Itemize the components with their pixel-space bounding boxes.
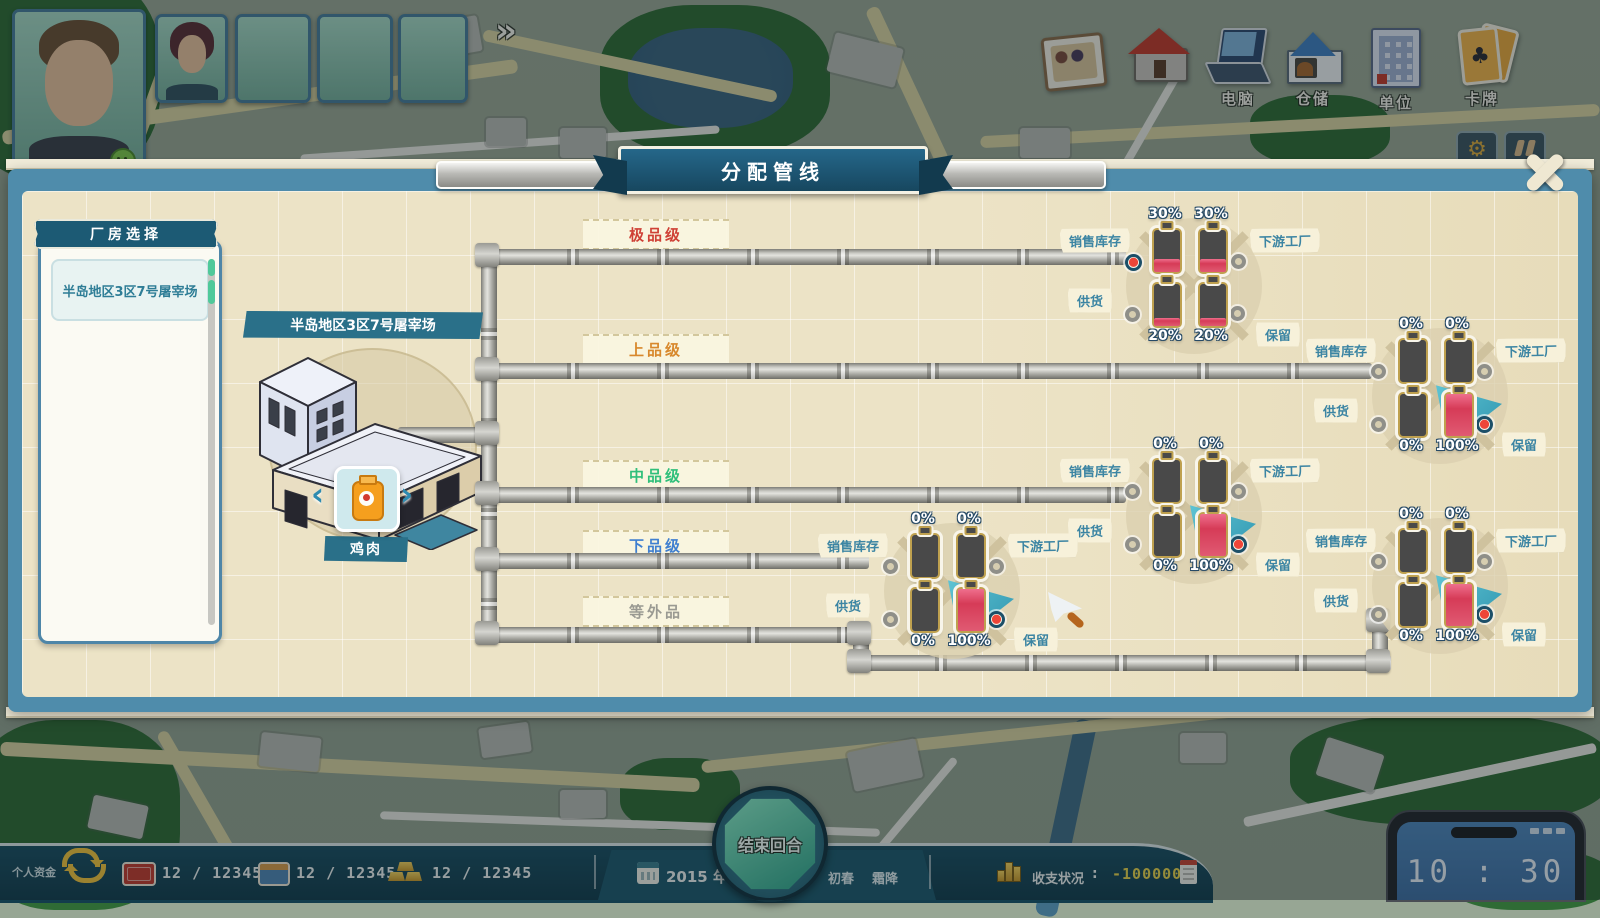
label-sales-inventory: 销售库存 xyxy=(1306,337,1377,363)
connection-dot[interactable] xyxy=(883,612,898,627)
panel-title: 分配管线 xyxy=(618,146,928,194)
battery-sales[interactable] xyxy=(1398,338,1428,384)
pct-supply: 0% xyxy=(1143,558,1187,574)
distribution-node-supreme: 30% 30% 20% 20% 销售库存 下游工厂 供货 保留 xyxy=(1134,226,1254,346)
label-downstream-factory: 下游工厂 xyxy=(1008,532,1079,558)
factory-name-ribbon: 半岛地区3区7号屠宰场 xyxy=(243,311,483,339)
battery-reserve[interactable] xyxy=(1198,512,1228,558)
pipe-grade-supreme xyxy=(489,249,1126,265)
close-icon[interactable] xyxy=(1522,150,1568,196)
distribution-node-high: 0% 0% 0% 100% 销售库存 下游工厂 供货 保留 xyxy=(1380,336,1500,456)
label-sales-inventory: 销售库存 xyxy=(1060,457,1131,483)
connection-dot[interactable] xyxy=(1231,484,1246,499)
grade-label-reject: 等外品 xyxy=(583,596,729,627)
pipe-joint xyxy=(475,421,499,445)
connection-dot[interactable] xyxy=(1371,417,1386,432)
pipe-joint xyxy=(475,547,499,571)
connection-dot[interactable] xyxy=(1125,537,1140,552)
connection-dot[interactable] xyxy=(1125,484,1140,499)
grade-label-high: 上品级 xyxy=(583,334,729,365)
product-slot[interactable] xyxy=(334,466,400,532)
battery-downstream[interactable] xyxy=(1444,528,1474,574)
pipe-joint xyxy=(475,357,499,381)
pct-reserve: 100% xyxy=(1435,628,1479,644)
pipe-joint xyxy=(475,621,499,645)
label-reserve: 保留 xyxy=(1502,622,1547,648)
connection-dot[interactable] xyxy=(1371,607,1386,622)
distribution-node-reject: 0% 0% 0% 100% 销售库存 下游工厂 供货 保留 xyxy=(1380,526,1500,646)
product-next-button[interactable]: › xyxy=(400,478,413,510)
pct-sales: 0% xyxy=(1389,506,1433,522)
pct-sales: 30% xyxy=(1143,206,1187,222)
label-downstream-factory: 下游工厂 xyxy=(1496,527,1567,553)
battery-reserve[interactable] xyxy=(1444,392,1474,438)
battery-sales[interactable] xyxy=(910,533,940,579)
pct-downstream: 30% xyxy=(1189,206,1233,222)
battery-downstream[interactable] xyxy=(1198,228,1228,274)
pct-supply: 0% xyxy=(1389,628,1433,644)
label-supply: 供货 xyxy=(1314,398,1359,424)
pct-supply: 0% xyxy=(901,633,945,649)
pct-downstream: 0% xyxy=(1189,436,1233,452)
label-supply: 供货 xyxy=(1068,288,1113,314)
pipe-grade-low xyxy=(489,553,869,569)
label-downstream-factory: 下游工厂 xyxy=(1250,457,1321,483)
connection-dot[interactable] xyxy=(1371,554,1386,569)
battery-reserve[interactable] xyxy=(1444,582,1474,628)
connection-dot[interactable] xyxy=(1371,364,1386,379)
connection-dot[interactable] xyxy=(1231,254,1246,269)
battery-reserve[interactable] xyxy=(956,587,986,633)
pipe-joint xyxy=(847,649,871,673)
battery-downstream[interactable] xyxy=(1444,338,1474,384)
connection-dot-active[interactable] xyxy=(988,611,1005,628)
pct-reserve: 100% xyxy=(1435,438,1479,454)
connection-dot-active[interactable] xyxy=(1476,416,1493,433)
distribution-node-low: 0% 0% 0% 100% 销售库存 下游工厂 供货 保留 xyxy=(892,531,1012,651)
pct-reserve: 100% xyxy=(947,633,991,649)
label-reserve: 保留 xyxy=(1256,552,1301,578)
battery-downstream[interactable] xyxy=(956,533,986,579)
factory-select-header: 厂房选择 xyxy=(34,219,218,249)
pipe-grade-high xyxy=(489,363,1372,379)
connection-dot[interactable] xyxy=(1230,306,1245,321)
connection-dot-active[interactable] xyxy=(1476,606,1493,623)
label-sales-inventory: 销售库存 xyxy=(818,532,889,558)
grade-label-supreme: 极品级 xyxy=(583,219,729,250)
label-sales-inventory: 销售库存 xyxy=(1060,227,1131,253)
pct-sales: 0% xyxy=(901,511,945,527)
connection-dot[interactable] xyxy=(883,559,898,574)
connection-dot-active[interactable] xyxy=(1125,254,1142,271)
pct-sales: 0% xyxy=(1143,436,1187,452)
connection-dot[interactable] xyxy=(1125,307,1140,322)
battery-supply[interactable] xyxy=(1152,512,1182,558)
label-reserve: 保留 xyxy=(1256,322,1301,348)
pct-reserve: 100% xyxy=(1189,558,1233,574)
label-supply: 供货 xyxy=(826,593,871,619)
distribution-node-mid: 0% 0% 0% 100% 销售库存 下游工厂 供货 保留 xyxy=(1134,456,1254,576)
pct-reserve: 20% xyxy=(1189,328,1233,344)
battery-supply[interactable] xyxy=(1398,582,1428,628)
pipe-grade-mid xyxy=(489,487,1126,503)
factory-select-list: 半岛地区3区7号屠宰场 xyxy=(38,240,222,644)
pipe-grade-reject xyxy=(489,627,857,643)
pct-sales: 0% xyxy=(1389,316,1433,332)
pct-downstream: 0% xyxy=(1435,506,1479,522)
pct-supply: 0% xyxy=(1389,438,1433,454)
connection-dot-active[interactable] xyxy=(1230,536,1247,553)
scrollbar-thumb[interactable] xyxy=(208,280,215,304)
label-supply: 供货 xyxy=(1314,588,1359,614)
pct-supply: 20% xyxy=(1143,328,1187,344)
connection-dot[interactable] xyxy=(1477,364,1492,379)
pipe-joint xyxy=(847,621,871,645)
pct-downstream: 0% xyxy=(947,511,991,527)
product-name-ribbon: 鸡肉 xyxy=(324,536,408,562)
battery-sales[interactable] xyxy=(1152,458,1182,504)
label-downstream-factory: 下游工厂 xyxy=(1496,337,1567,363)
pipe-joint xyxy=(475,481,499,505)
battery-supply[interactable] xyxy=(1152,282,1182,328)
product-prev-button[interactable]: ‹ xyxy=(311,478,324,510)
pct-downstream: 0% xyxy=(1435,316,1479,332)
chicken-jar-icon xyxy=(352,481,384,521)
label-sales-inventory: 销售库存 xyxy=(1306,527,1377,553)
battery-downstream[interactable] xyxy=(1198,458,1228,504)
battery-sales[interactable] xyxy=(1398,528,1428,574)
label-reserve: 保留 xyxy=(1502,432,1547,458)
connection-dot[interactable] xyxy=(1477,554,1492,569)
battery-sales[interactable] xyxy=(1152,228,1182,274)
pipe-joint xyxy=(475,243,499,267)
scrollbar-thumb[interactable] xyxy=(208,259,215,276)
scrollbar-track[interactable] xyxy=(208,259,215,625)
connection-dot[interactable] xyxy=(989,559,1004,574)
pipe-joint xyxy=(1366,649,1390,673)
factory-list-item[interactable]: 半岛地区3区7号屠宰场 xyxy=(51,259,209,321)
label-downstream-factory: 下游工厂 xyxy=(1250,227,1321,253)
mouse-cursor xyxy=(1048,592,1090,638)
battery-reserve[interactable] xyxy=(1198,282,1228,328)
battery-supply[interactable] xyxy=(1398,392,1428,438)
battery-supply[interactable] xyxy=(910,587,940,633)
